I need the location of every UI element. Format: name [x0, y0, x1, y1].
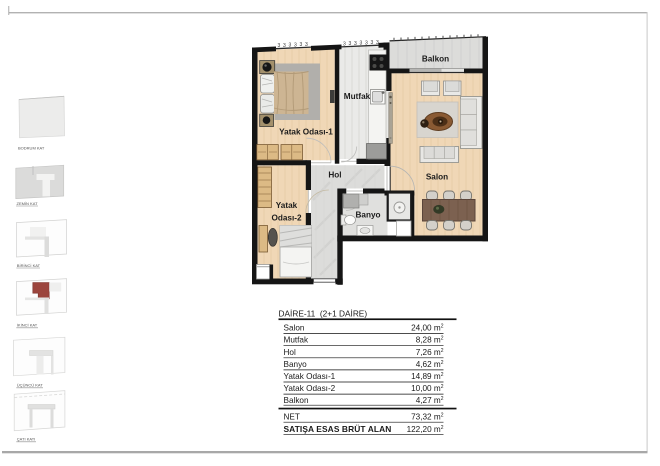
svg-text:3: 3 — [354, 41, 357, 47]
svg-text:122,20 m2: 122,20 m2 — [407, 425, 444, 434]
svg-text:Banyo: Banyo — [284, 360, 308, 369]
svg-text:14,89 m2: 14,89 m2 — [411, 372, 444, 381]
svg-text:BODRUM KAT: BODRUM KAT — [18, 146, 45, 151]
svg-text:DAİRE-11 (2+1 DAİRE): DAİRE-11 (2+1 DAİRE) — [279, 309, 368, 319]
svg-text:İKİNCİ KAT: İKİNCİ KAT — [17, 323, 38, 328]
svg-text:Banyo: Banyo — [355, 211, 380, 220]
svg-text:ÇATI KATI: ÇATI KATI — [17, 437, 36, 442]
svg-text:Yatak Odası-1: Yatak Odası-1 — [279, 128, 333, 137]
svg-text:SATIŞA ESAS BRÜT ALAN: SATIŞA ESAS BRÜT ALAN — [284, 424, 392, 434]
svg-text:3: 3 — [294, 42, 297, 48]
svg-text:24,00 m2: 24,00 m2 — [411, 324, 444, 333]
svg-text:3: 3 — [278, 43, 281, 49]
svg-text:3: 3 — [365, 40, 368, 46]
svg-text:3: 3 — [300, 42, 303, 48]
svg-text:Yatak Odası-1: Yatak Odası-1 — [284, 372, 336, 381]
svg-text:NET: NET — [284, 413, 300, 422]
svg-text:3: 3 — [343, 41, 346, 47]
svg-text:73,32 m2: 73,32 m2 — [411, 413, 444, 422]
svg-text:3: 3 — [371, 40, 374, 46]
svg-text:Salon: Salon — [426, 173, 448, 182]
svg-text:Yatak Odası-2: Yatak Odası-2 — [284, 384, 336, 393]
svg-text:7,26 m2: 7,26 m2 — [416, 348, 444, 357]
svg-text:3: 3 — [360, 41, 363, 47]
svg-text:3: 3 — [289, 43, 292, 49]
svg-text:3: 3 — [283, 43, 286, 49]
svg-text:Balkon: Balkon — [284, 396, 309, 405]
svg-text:4,27 m2: 4,27 m2 — [416, 396, 444, 405]
svg-text:4,62 m2: 4,62 m2 — [416, 360, 444, 369]
svg-text:3: 3 — [305, 42, 308, 48]
svg-text:3: 3 — [349, 41, 352, 47]
svg-text:BİRİNCİ KAT: BİRİNCİ KAT — [17, 263, 41, 268]
svg-text:ZEMİN KAT: ZEMİN KAT — [17, 201, 39, 206]
svg-text:Salon: Salon — [284, 324, 305, 333]
svg-text:Odası-2: Odası-2 — [271, 214, 301, 223]
svg-text:Balkon: Balkon — [422, 55, 449, 64]
svg-text:10,00 m2: 10,00 m2 — [411, 384, 444, 393]
svg-text:Mutfak: Mutfak — [344, 92, 371, 101]
svg-text:8,28 m2: 8,28 m2 — [416, 336, 444, 345]
svg-text:ÜÇÜNCÜ KAT: ÜÇÜNCÜ KAT — [17, 383, 43, 388]
svg-text:Mutfak: Mutfak — [284, 336, 309, 345]
svg-text:Yatak: Yatak — [276, 201, 298, 210]
svg-text:Hol: Hol — [328, 171, 341, 180]
svg-text:Hol: Hol — [284, 348, 296, 357]
